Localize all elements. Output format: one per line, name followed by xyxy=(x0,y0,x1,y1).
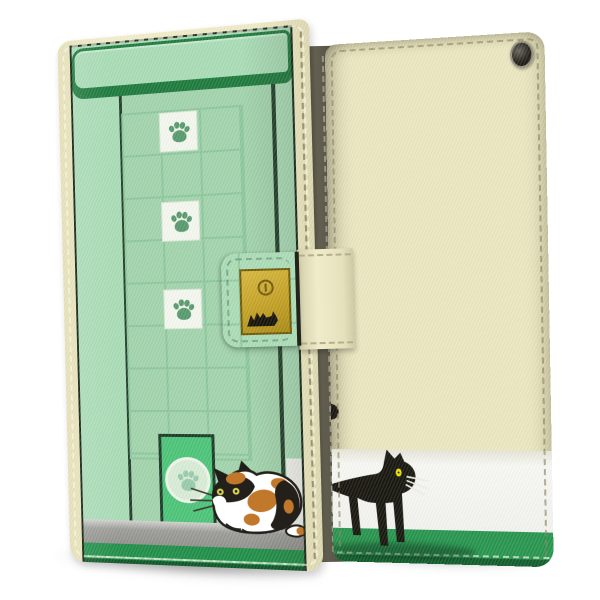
paw-tile-3 xyxy=(163,289,202,330)
calico-cat-whiskers xyxy=(190,488,214,511)
gold-clasp-plate xyxy=(239,268,292,335)
black-cat-illustration xyxy=(330,445,433,558)
paw-tile-1 xyxy=(159,110,198,152)
paw-print-icon xyxy=(171,297,195,322)
snap-button-icon xyxy=(257,279,273,295)
strap-end-on-front xyxy=(221,252,302,348)
calico-cat-illustration xyxy=(189,452,307,542)
paw-print-icon xyxy=(169,209,193,234)
paw-print-icon xyxy=(166,119,190,145)
paw-tile-2 xyxy=(161,200,200,242)
strap-spine-stitch xyxy=(299,253,353,344)
camera-hole xyxy=(510,40,534,69)
magnetic-strap xyxy=(221,248,356,352)
back-cover-view xyxy=(325,31,554,567)
strap-over-spine xyxy=(297,248,356,350)
cat-clasp-glyph-icon xyxy=(245,306,280,329)
product-image-canvas xyxy=(0,0,600,600)
